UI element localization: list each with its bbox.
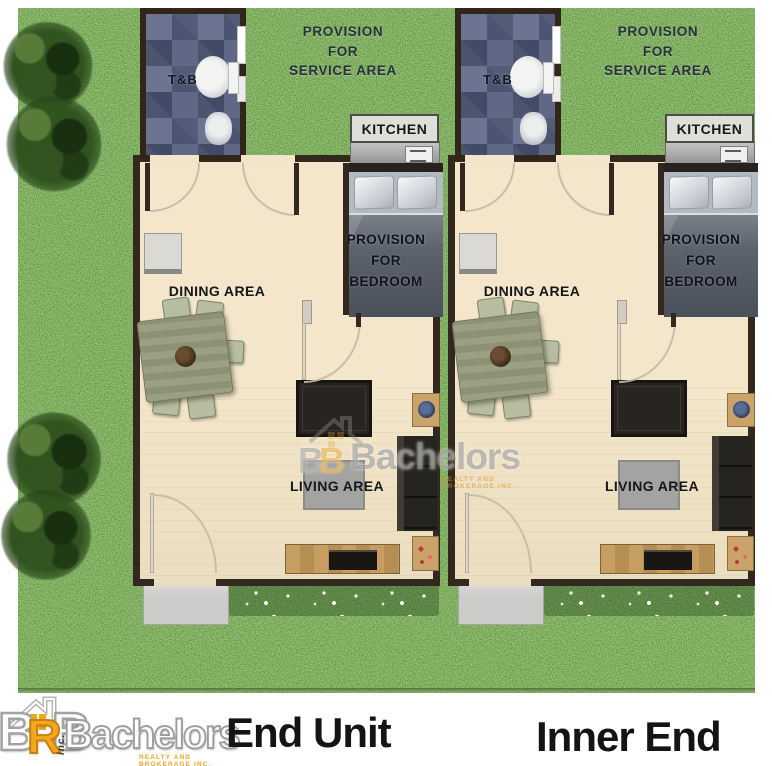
bachelors-logo: BRB inc. Bachelors REALTY AND BROKERAGE …	[0, 693, 230, 766]
door-opening	[241, 155, 295, 163]
door-opening	[150, 155, 199, 163]
door-leaf	[302, 323, 306, 380]
wall-stub	[356, 313, 361, 327]
wall-stub	[145, 163, 150, 211]
floorplan-scene: PROVISION FOR SERVICE AREA T&B KITCHEN P…	[0, 0, 772, 766]
door-opening	[556, 155, 610, 163]
unit-inner: PROVISION FOR SERVICE AREA T&B KITCHEN P…	[448, 8, 760, 693]
door-swing-arcs	[448, 8, 760, 693]
unit-end: PROVISION FOR SERVICE AREA T&B KITCHEN P…	[133, 8, 445, 693]
door-leaf	[150, 493, 154, 573]
wall-stub	[671, 313, 676, 327]
entry-door-opening	[469, 578, 531, 587]
unit-caption-end: End Unit	[226, 709, 391, 757]
unit-caption-inner: Inner End	[536, 713, 721, 761]
door-leaf	[617, 323, 621, 380]
caption-bar: BRB inc. Bachelors REALTY AND BROKERAGE …	[0, 693, 772, 766]
entry-door-opening	[154, 578, 216, 587]
tree-icon	[6, 96, 102, 192]
wall-stub	[294, 163, 299, 215]
wall-stub	[460, 163, 465, 211]
wall-stub	[609, 163, 614, 215]
tree-icon	[0, 490, 92, 580]
brand-name: Bachelors	[64, 711, 239, 758]
brand-tagline: REALTY AND BROKERAGE INC.	[139, 754, 230, 766]
door-opening	[465, 155, 514, 163]
door-swing-arcs	[133, 8, 445, 693]
door-leaf	[465, 493, 469, 573]
